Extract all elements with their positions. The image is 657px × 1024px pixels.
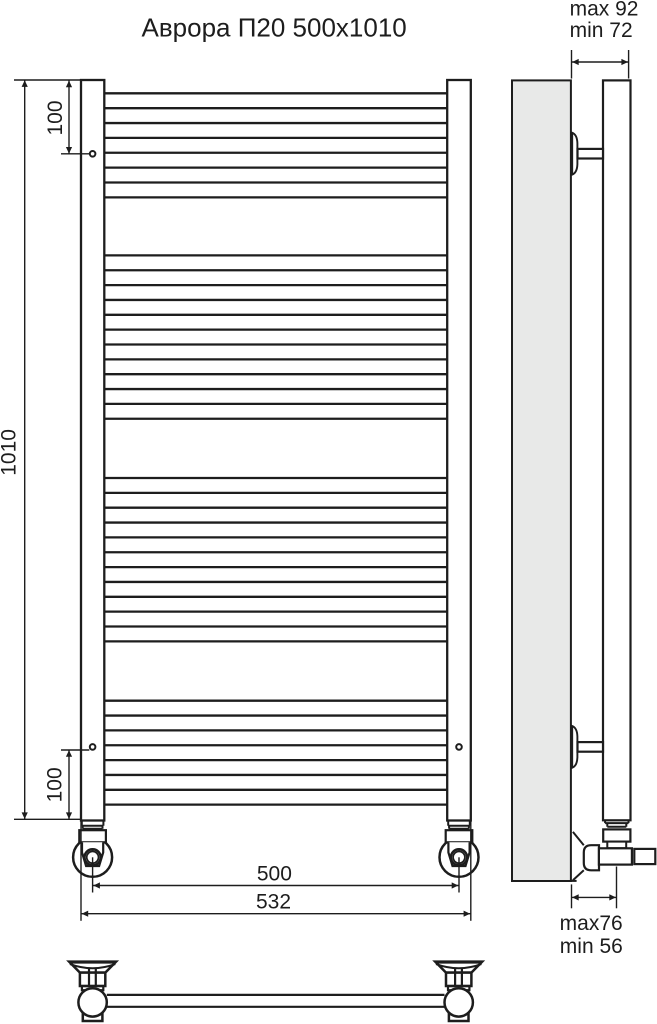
svg-text:max 92: max 92 bbox=[570, 0, 639, 20]
svg-text:min 56: min 56 bbox=[560, 935, 623, 958]
svg-text:100: 100 bbox=[44, 100, 67, 135]
svg-text:min 72: min 72 bbox=[570, 19, 633, 42]
svg-text:Аврора П20 500x1010: Аврора П20 500x1010 bbox=[142, 12, 407, 42]
svg-text:532: 532 bbox=[256, 890, 291, 913]
svg-text:100: 100 bbox=[44, 767, 67, 802]
svg-text:max76: max76 bbox=[560, 912, 623, 935]
svg-text:1010: 1010 bbox=[0, 429, 21, 476]
svg-text:500: 500 bbox=[257, 863, 292, 886]
